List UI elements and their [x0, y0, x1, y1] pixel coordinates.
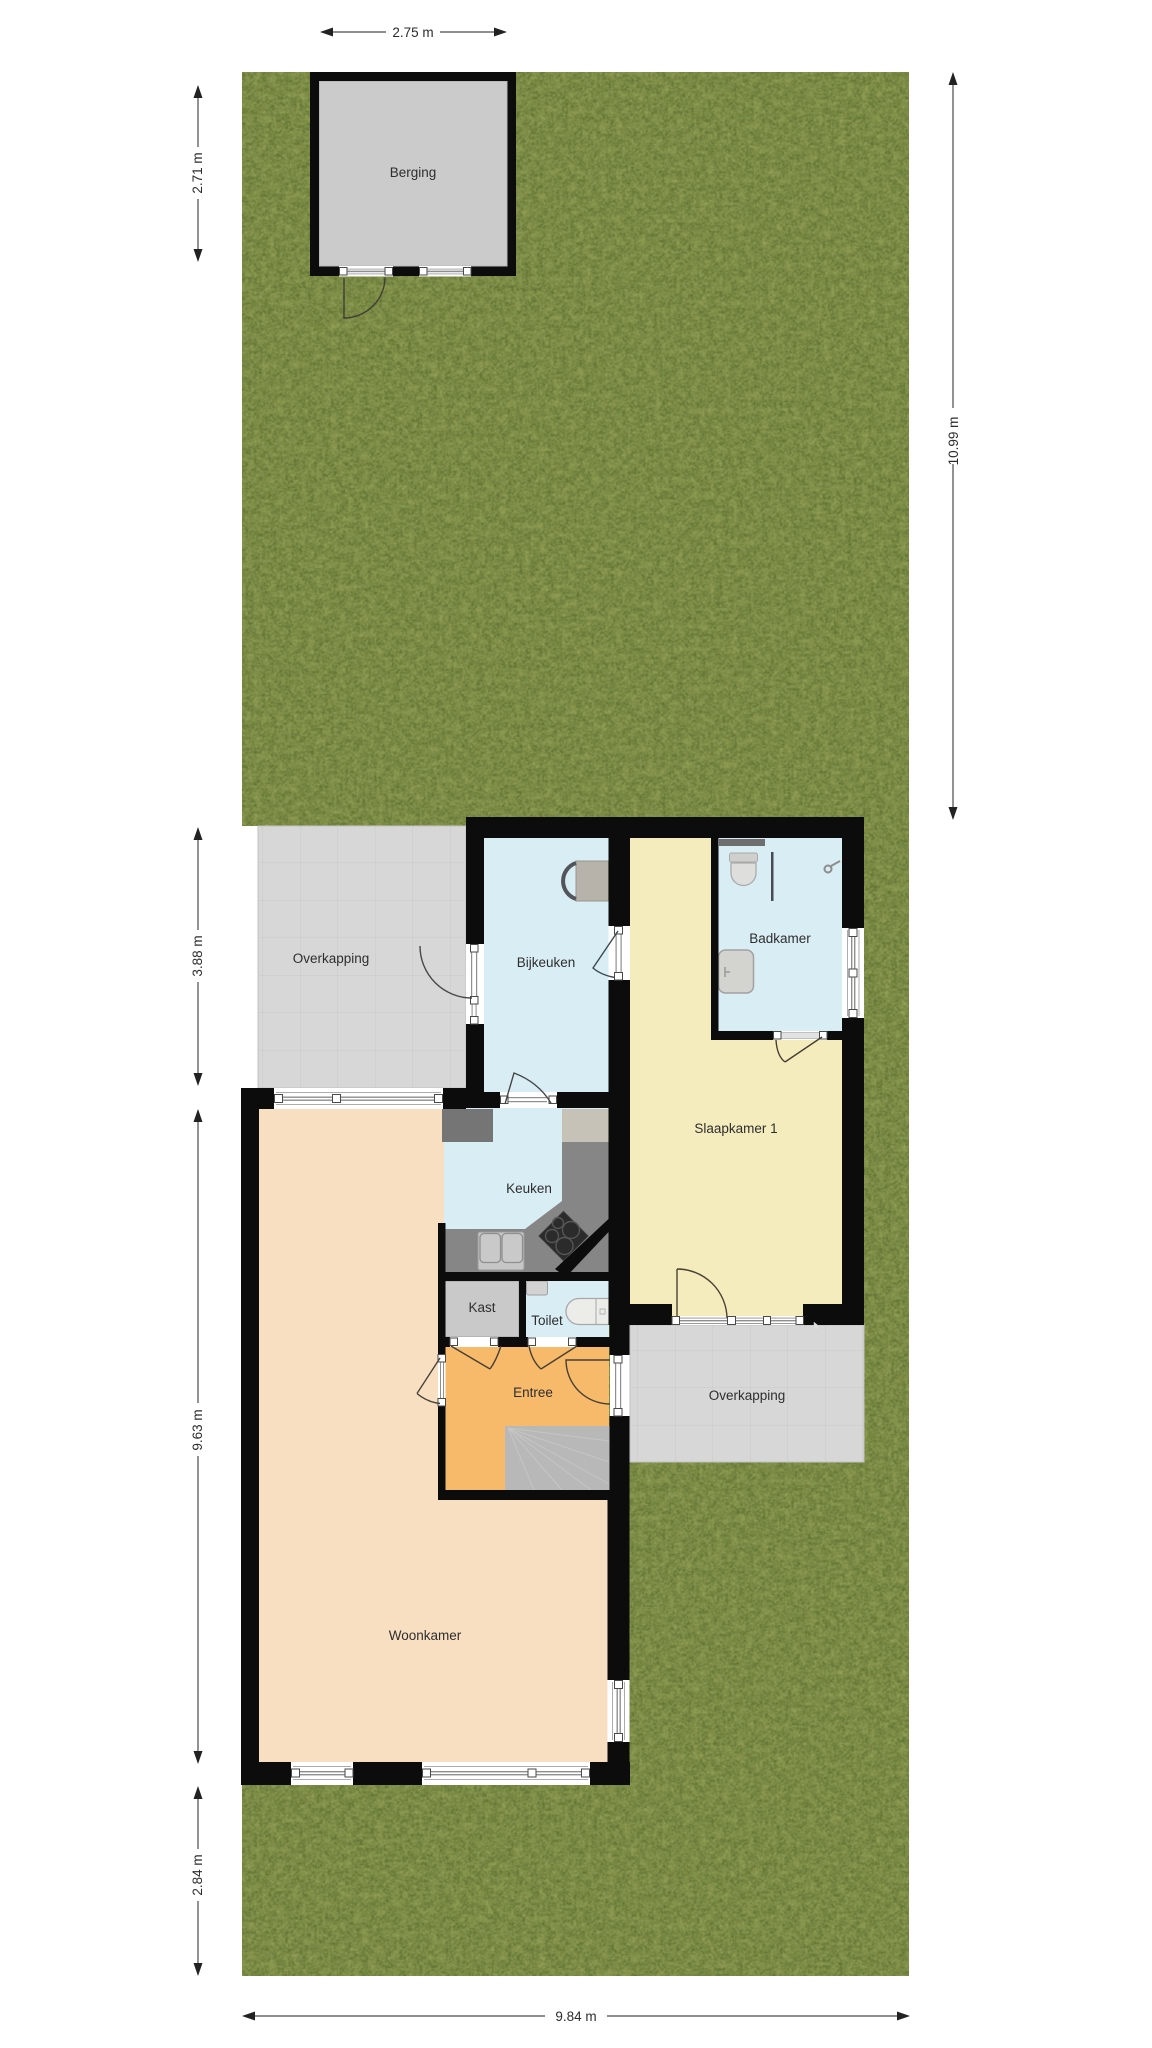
- svg-text:10.99 m: 10.99 m: [946, 417, 961, 466]
- svg-text:3.88 m: 3.88 m: [190, 935, 205, 976]
- svg-text:Overkapping: Overkapping: [709, 1388, 786, 1403]
- svg-text:Slaapkamer 1: Slaapkamer 1: [694, 1121, 777, 1136]
- svg-text:9.84 m: 9.84 m: [555, 2009, 596, 2024]
- svg-text:Entree: Entree: [513, 1385, 553, 1400]
- svg-text:Toilet: Toilet: [531, 1313, 563, 1328]
- svg-text:Badkamer: Badkamer: [749, 931, 811, 946]
- svg-text:2.71 m: 2.71 m: [190, 152, 205, 193]
- svg-text:Bijkeuken: Bijkeuken: [517, 955, 576, 970]
- svg-text:2.75 m: 2.75 m: [392, 25, 433, 40]
- svg-text:9.63 m: 9.63 m: [190, 1409, 205, 1450]
- svg-text:Berging: Berging: [390, 165, 437, 180]
- svg-text:2.84 m: 2.84 m: [190, 1854, 205, 1895]
- svg-text:Overkapping: Overkapping: [293, 951, 370, 966]
- svg-text:Keuken: Keuken: [506, 1181, 552, 1196]
- svg-text:Kast: Kast: [468, 1300, 495, 1315]
- svg-text:Woonkamer: Woonkamer: [389, 1628, 462, 1643]
